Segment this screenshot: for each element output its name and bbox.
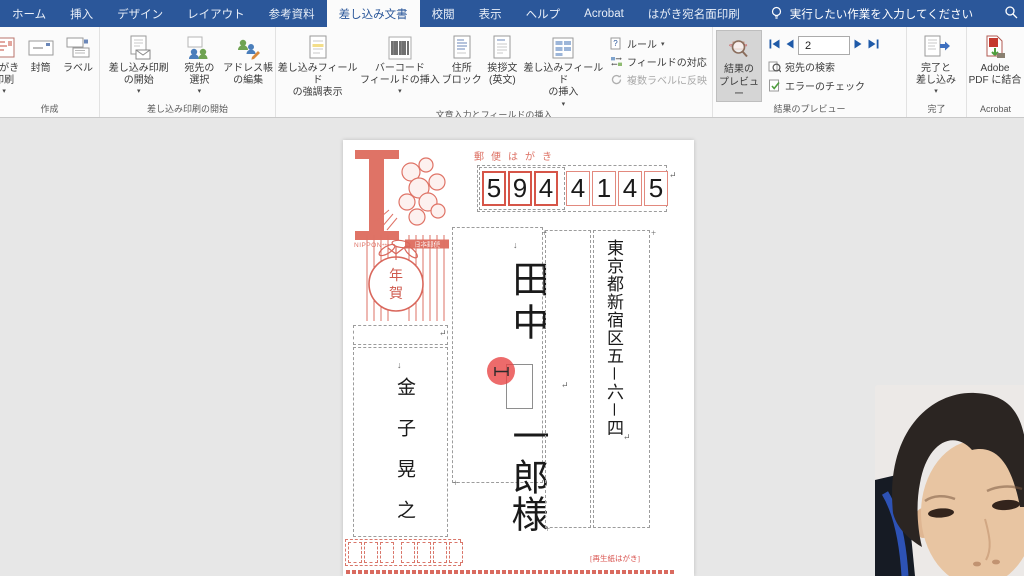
ribbon-group-write-insert-fields: 差し込みフィールド の強調表示 バーコード フィールドの挿入 ▾ 住所 ブロック [276,27,713,117]
tab-acrobat[interactable]: Acrobat [572,0,636,27]
ribbon: はがき 印刷 ▾ 封筒 ラベル 作成 [0,27,1024,118]
check-errors-icon [768,79,781,92]
barcode-field-button[interactable]: バーコード フィールドの挿入 ▾ [358,29,441,95]
update-labels-button: 複数ラベルに反映 [610,72,707,87]
postal-digit-box: 1 [592,171,616,206]
tab-design[interactable]: デザイン [105,0,175,27]
tell-me-box[interactable]: 実行したい作業を入力してください [770,0,973,27]
envelope-icon [28,33,54,63]
anchor-mark: ↵ [623,432,631,443]
postcard-header-label: 郵便はがき [474,148,559,163]
tab-help[interactable]: ヘルプ [514,0,573,27]
next-record-button[interactable] [853,37,864,55]
handle-mark: + [651,228,656,238]
labels-label: ラベル [63,63,93,75]
finish-merge-icon [922,33,950,63]
nenga-stamp-graphic: 年 賀 [353,232,463,326]
finish-merge-button[interactable]: 完了と 差し込み ▾ [908,29,964,95]
dropdown-arrow-icon: ▾ [934,87,938,95]
ribbon-group-acrobat: Adobe PDF に結合 Acrobat [967,27,1024,117]
start-mail-merge-button[interactable]: 差し込み印刷 の開始 ▾ [101,29,177,95]
previous-record-button[interactable] [784,37,795,55]
dropdown-arrow-icon: ▾ [661,40,665,48]
postal-digit-box: 5 [644,171,668,206]
dropdown-arrow-icon: ▾ [2,87,6,95]
webcam-overlay [875,385,1024,576]
rules-label: ルール [627,36,657,51]
postal-digit-box: 5 [482,171,506,206]
finish-merge-label: 完了と 差し込み [916,63,956,87]
merge-to-adobe-pdf-button[interactable]: Adobe PDF に結合 [968,29,1022,87]
merge-to-adobe-pdf-label: Adobe PDF に結合 [969,63,1022,87]
anchor-mark: ↵ [439,328,447,339]
fine-print-line [346,570,676,574]
update-labels-icon [610,73,623,86]
match-fields-label: フィールドの対応 [627,54,707,69]
find-recipient-icon [768,60,781,73]
check-errors-button[interactable]: エラーのチェック [768,78,880,93]
postcard-page[interactable]: NIPPON 日本郵便 *** 年 賀 郵便はがき [343,140,694,576]
tab-home[interactable]: ホーム [0,0,58,27]
first-record-button[interactable] [768,37,781,55]
svg-text:賀: 賀 [389,286,403,302]
ribbon-group-preview-results: «» 結果の プレビュー 宛先の検索 エラーのチェック [713,27,907,117]
find-recipient-button[interactable]: 宛先の検索 [768,59,880,74]
tab-layout[interactable]: レイアウト [175,0,257,27]
greeting-line-label: 挨拶文 (英文) [487,63,517,87]
document-canvas: NIPPON 日本郵便 *** 年 賀 郵便はがき [0,119,1024,576]
honorific-text[interactable]: 様 [498,495,552,532]
tab-review[interactable]: 校閲 [420,0,467,27]
empty-field-frame[interactable] [545,230,591,528]
labels-icon [65,33,91,63]
postal-digit-box: 4 [534,171,558,206]
hagaki-print-icon [0,33,17,63]
adobe-pdf-icon [982,33,1008,63]
tab-view[interactable]: 表示 [467,0,514,27]
last-record-button[interactable] [867,37,880,55]
ribbon-group-create: はがき 印刷 ▾ 封筒 ラベル 作成 [0,27,100,117]
tab-insert[interactable]: 挿入 [58,0,105,27]
insert-merge-field-icon [551,33,575,63]
svg-text:年: 年 [389,268,403,284]
select-recipients-button[interactable]: 宛先の 選択 ▾ [177,29,223,95]
dropdown-arrow-icon: ▾ [137,87,141,95]
recycled-paper-note: [再生紙はがき] [590,553,640,564]
edit-recipient-list-icon [235,33,261,63]
anchor-mark: ↵ [561,380,569,391]
envelope-button[interactable]: 封筒 [23,29,58,75]
highlight-merge-fields-button[interactable]: 差し込みフィールド の強調表示 [277,29,358,100]
dropdown-arrow-icon: ▾ [398,87,402,95]
tab-references[interactable]: 参考資料 [257,0,327,27]
group-label-preview-results: 結果のプレビュー [714,102,905,117]
handle-mark: + [542,228,547,238]
check-errors-label: エラーのチェック [785,78,865,93]
tab-hagaki-atena[interactable]: はがき宛名面印刷 [636,0,752,27]
ribbon-tab-bar: ホーム 挿入 デザイン レイアウト 参考資料 差し込み文書 校閲 表示 ヘルプ … [0,0,1024,27]
group-label-acrobat: Acrobat [968,102,1023,117]
edit-recipient-list-label: アドレス帳 の編集 [223,63,273,87]
ribbon-group-start-merge: 差し込み印刷 の開始 ▾ 宛先の 選択 ▾ アドレス帳 の編集 差し込み印刷の開… [100,27,276,117]
handle-mark: + [453,478,458,488]
start-mail-merge-label: 差し込み印刷 の開始 [109,63,169,87]
match-fields-icon [610,55,623,68]
greeting-line-button[interactable]: 挨拶文 (英文) [482,29,523,87]
sender-address-field-frame[interactable] [353,325,448,345]
postal-digit-box: 9 [508,171,532,206]
direction-mark: ↓ [513,240,518,250]
greeting-line-icon [491,33,513,63]
address-block-icon [451,33,473,63]
group-label-write-insert: 文章入力とフィールドの挿入 [277,108,711,117]
recipient-address-text[interactable]: 東京都新宿区五－六－四 [601,239,626,437]
highlight-merge-fields-icon [307,33,329,63]
barcode-icon [388,33,412,63]
update-labels-label: 複数ラベルに反映 [627,72,707,87]
insert-merge-field-button[interactable]: 差し込みフィールド の挿入 ▾ [523,29,604,108]
lightbulb-icon [770,6,783,21]
rules-icon: ? [610,37,623,50]
preview-results-button[interactable]: «» 結果の プレビュー [716,30,762,102]
anchor-mark: ↵ [669,170,677,181]
match-fields-button[interactable]: フィールドの対応 [610,54,707,69]
tab-mail-merge[interactable]: 差し込み文書 [327,0,420,27]
ribbon-group-finish: 完了と 差し込み ▾ 完了 [907,27,967,117]
svg-text:?: ? [613,39,618,48]
rules-button[interactable]: ? ルール ▾ [610,36,707,51]
postal-code-boxes[interactable]: 5 9 4 4 1 4 5 [482,171,668,206]
hagaki-print-label: はがき 印刷 [0,63,19,87]
postal-digit-box: 4 [566,171,590,206]
envelope-label: 封筒 [31,63,51,75]
text-cursor-icon [493,366,510,377]
group-label-finish: 完了 [908,102,965,117]
address-block-button[interactable]: 住所 ブロック [441,29,482,87]
dropdown-arrow-icon: ▾ [198,87,202,95]
direction-mark: ↓ [397,360,402,370]
search-icon[interactable] [1004,5,1018,24]
address-block-label: 住所 ブロック [442,63,482,87]
hagaki-print-button[interactable]: はがき 印刷 ▾ [0,29,23,95]
webcam-person [875,385,1024,576]
labels-button[interactable]: ラベル [58,29,98,75]
preview-results-icon: «» [726,35,752,64]
select-recipients-icon [186,33,212,63]
handle-mark: + [545,524,550,534]
highlight-merge-fields-label: 差し込みフィールド の強調表示 [277,63,358,100]
sender-name-text[interactable]: 金子晃之 [391,377,418,541]
start-mail-merge-icon [126,33,152,63]
go-to-record-input[interactable] [798,36,850,55]
group-label-start-merge: 差し込み印刷の開始 [101,102,274,117]
group-label-create: 作成 [1,102,98,117]
postal-digit-box: 4 [618,171,642,206]
select-recipients-label: 宛先の 選択 [184,63,214,87]
sender-postal-boxes [348,542,463,563]
mouse-click-indicator [487,357,515,385]
edit-recipient-list-button[interactable]: アドレス帳 の編集 [222,29,274,87]
tell-me-label: 実行したい作業を入力してください [790,6,973,22]
barcode-field-label: バーコード フィールドの挿入 [360,63,440,87]
insert-merge-field-label: 差し込みフィールド の挿入 [523,63,604,100]
find-recipient-label: 宛先の検索 [785,59,835,74]
preview-results-label: 結果の プレビュー [717,64,761,101]
dropdown-arrow-icon: ▾ [562,100,566,108]
